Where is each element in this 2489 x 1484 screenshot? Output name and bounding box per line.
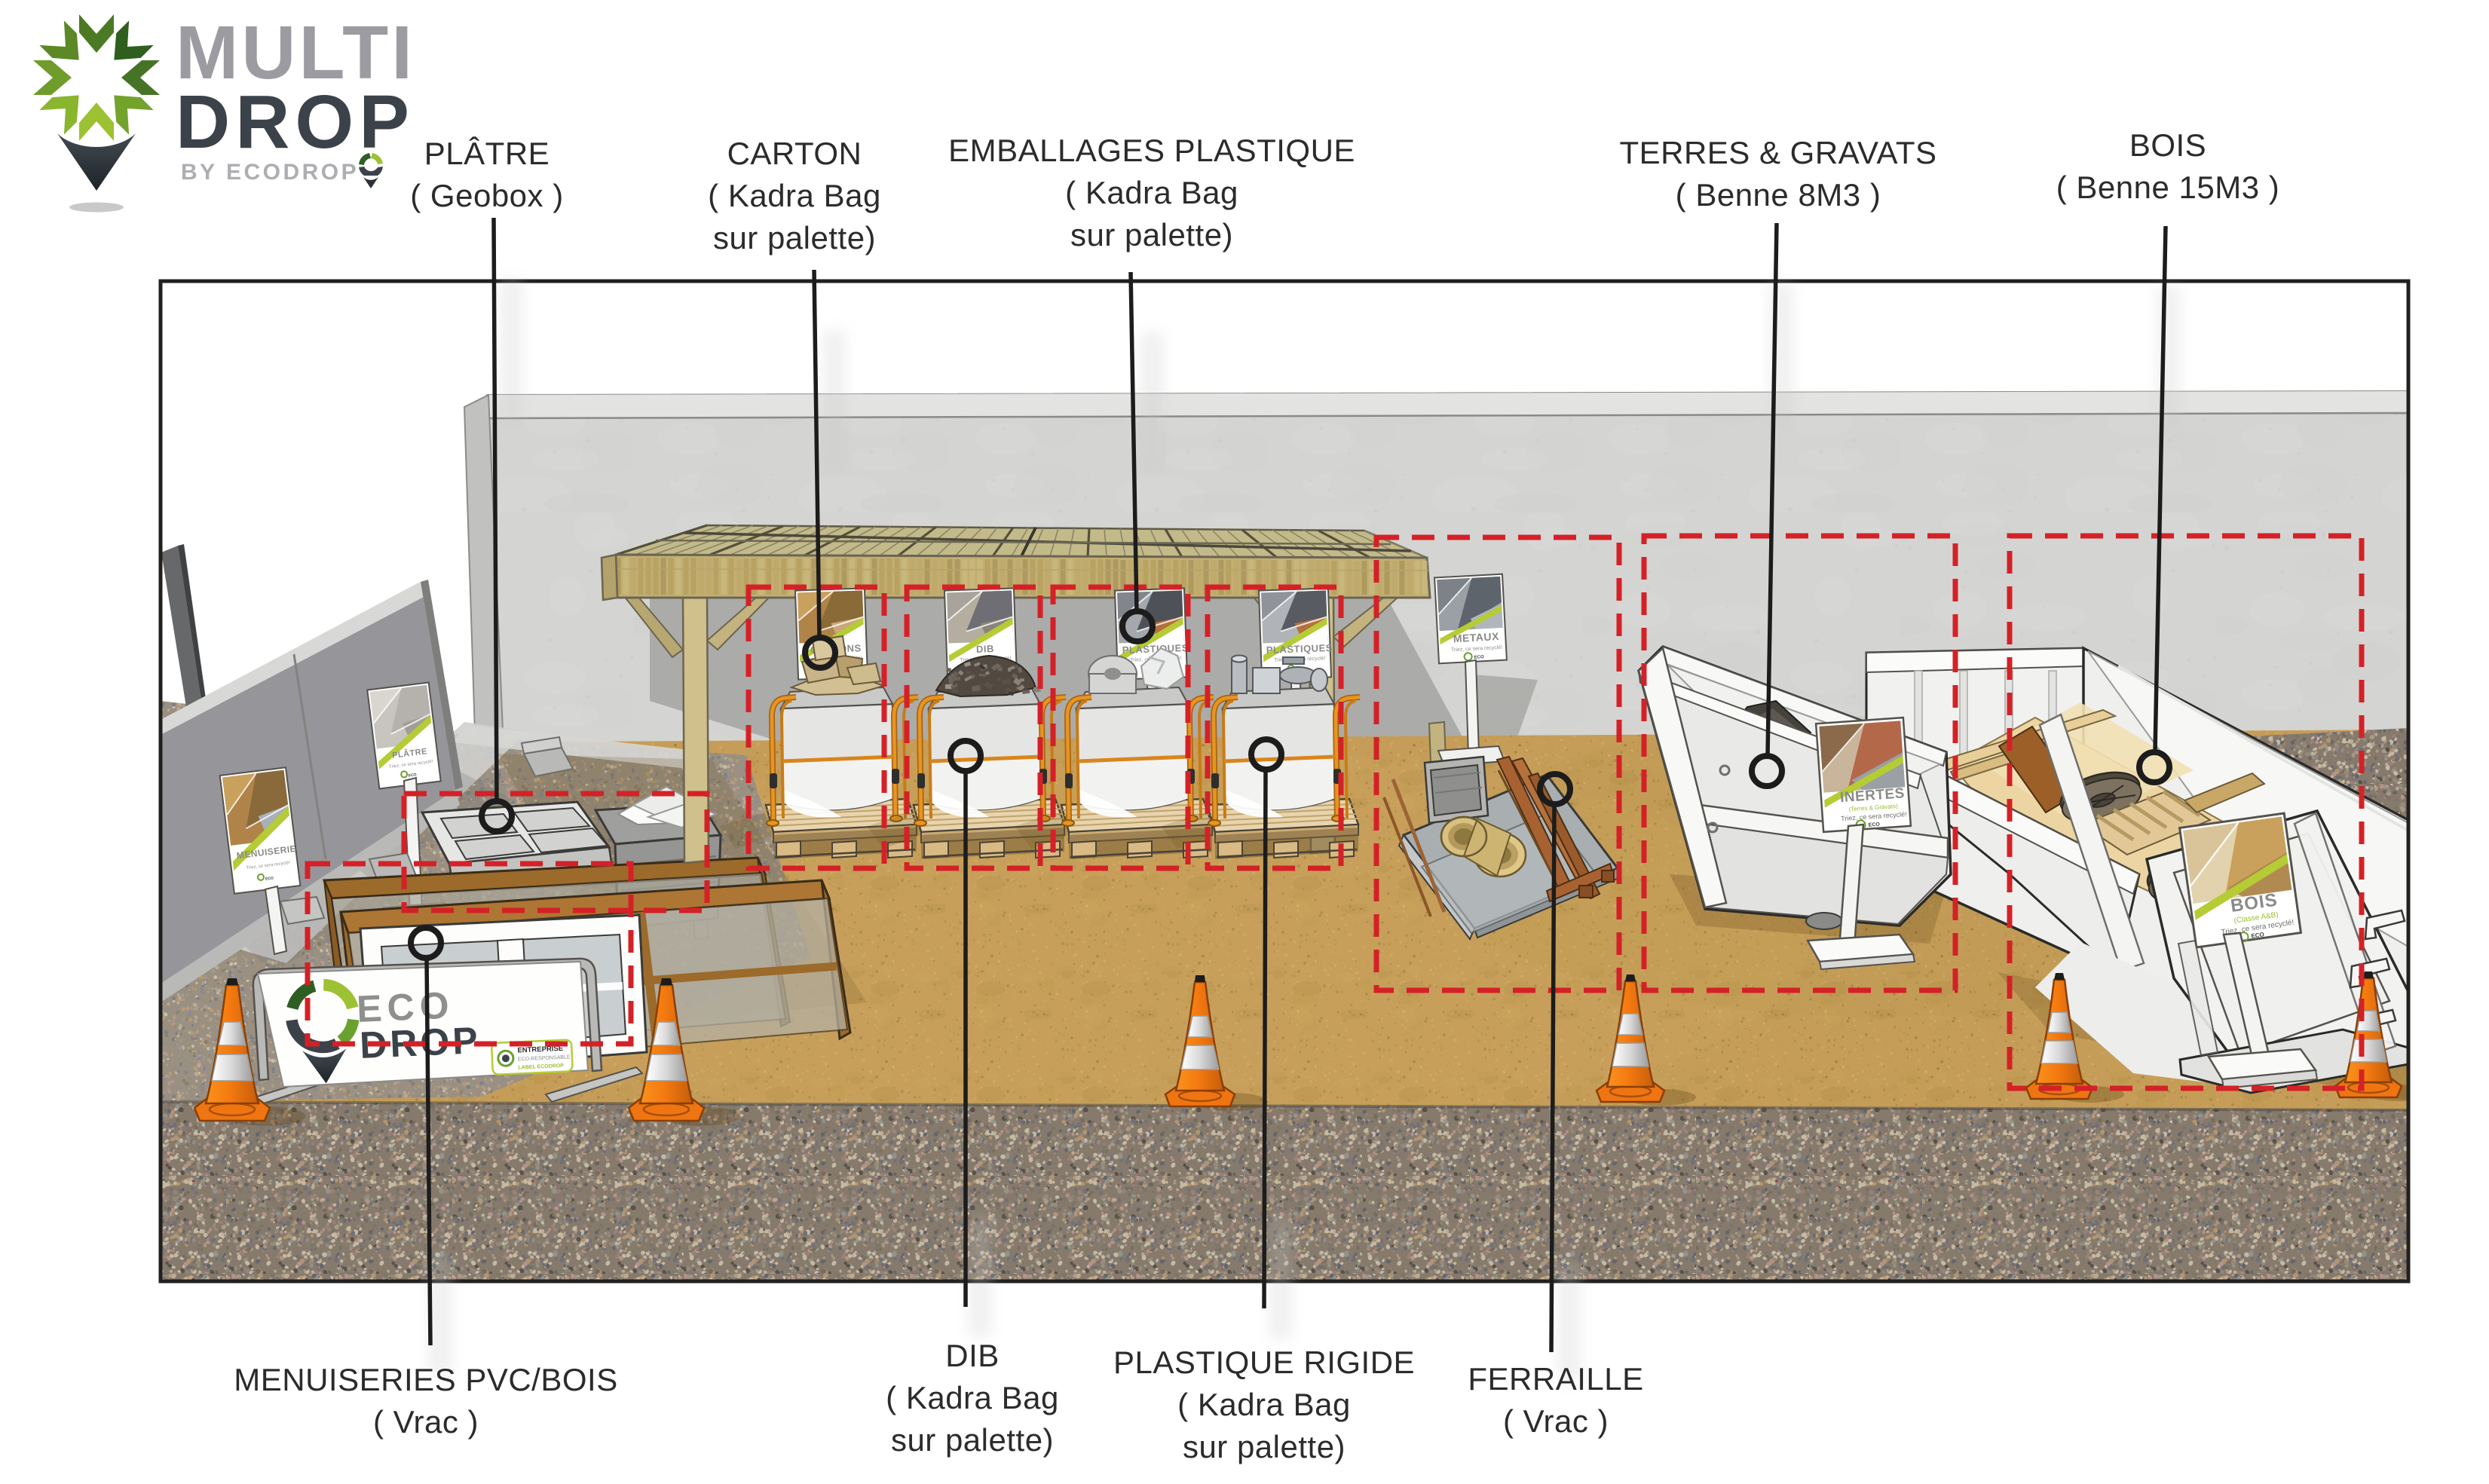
svg-text:( Kadra Bag: ( Kadra Bag: [708, 178, 881, 213]
svg-text:( Benne 8M3 ): ( Benne 8M3 ): [1676, 177, 1881, 213]
svg-text:( Vrac ): ( Vrac ): [373, 1404, 479, 1440]
svg-text:sur palette): sur palette): [1183, 1429, 1346, 1464]
svg-text:PLASTIQUES: PLASTIQUES: [1266, 642, 1333, 656]
svg-text:( Benne 15M3 ): ( Benne 15M3 ): [2056, 170, 2280, 205]
svg-text:METAUX: METAUX: [1453, 630, 1499, 644]
svg-text:sur palette): sur palette): [891, 1422, 1054, 1458]
svg-text:( Geobox ): ( Geobox ): [410, 178, 563, 213]
svg-text:DIB: DIB: [945, 1338, 1000, 1373]
svg-text:PLASTIQUE RIGIDE: PLASTIQUE RIGIDE: [1113, 1345, 1415, 1380]
svg-text:PLÂTRE: PLÂTRE: [424, 136, 550, 171]
svg-text:DROP: DROP: [176, 80, 415, 164]
svg-text:sur palette): sur palette): [1070, 217, 1233, 252]
svg-text:CARTON: CARTON: [727, 136, 862, 171]
svg-text:BOIS: BOIS: [2129, 127, 2206, 163]
svg-text:( Kadra Bag: ( Kadra Bag: [1177, 1387, 1351, 1422]
svg-text:MENUISERIES PVC/BOIS: MENUISERIES PVC/BOIS: [234, 1362, 617, 1397]
svg-text:EMBALLAGES PLASTIQUE: EMBALLAGES PLASTIQUE: [948, 133, 1355, 168]
svg-text:( Kadra Bag: ( Kadra Bag: [886, 1380, 1059, 1415]
svg-text:ECO: ECO: [1474, 655, 1485, 660]
svg-text:DIB: DIB: [976, 643, 994, 655]
svg-text:ECO: ECO: [1868, 822, 1880, 828]
svg-text:( Kadra Bag: ( Kadra Bag: [1065, 175, 1238, 210]
svg-text:FERRAILLE: FERRAILLE: [1468, 1361, 1643, 1397]
svg-text:( Vrac ): ( Vrac ): [1503, 1403, 1609, 1439]
svg-text:sur palette): sur palette): [713, 220, 876, 255]
svg-text:TERRES & GRAVATS: TERRES & GRAVATS: [1619, 135, 1936, 170]
svg-text:BY ECODROP: BY ECODROP: [181, 160, 359, 185]
